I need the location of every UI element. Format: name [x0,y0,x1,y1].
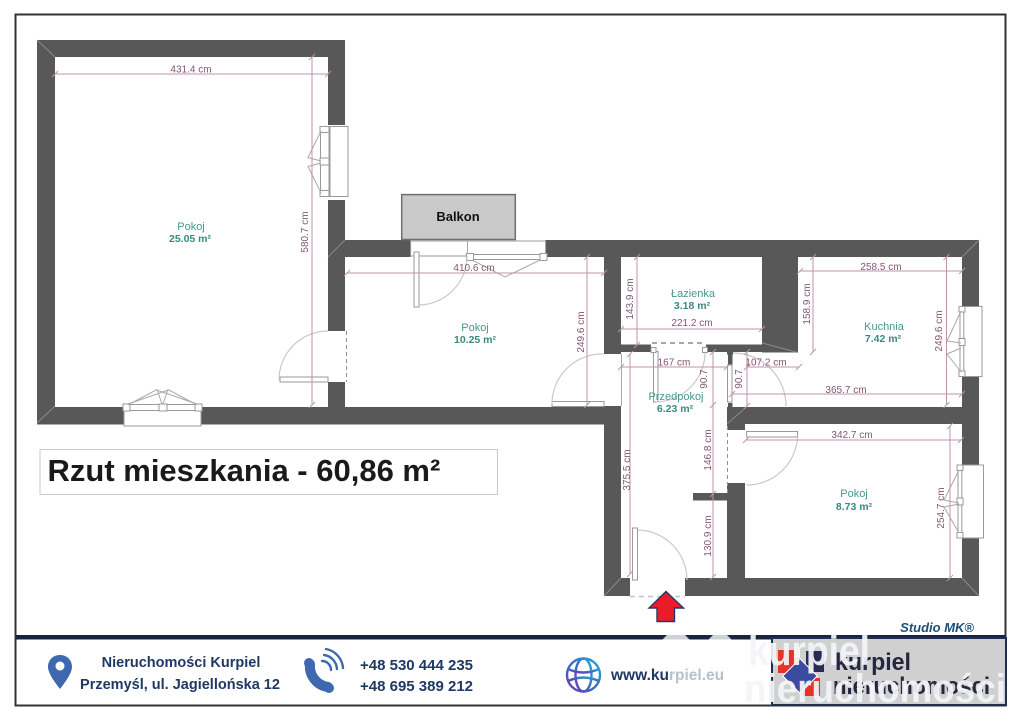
svg-text:580.7 cm: 580.7 cm [300,211,311,252]
svg-text:Balkon: Balkon [436,209,479,224]
svg-text:254.7 cm: 254.7 cm [936,487,947,528]
svg-text:Łazienka: Łazienka [671,288,716,300]
svg-text:143.9 cm: 143.9 cm [625,278,636,319]
svg-text:410.6 cm: 410.6 cm [453,263,494,274]
svg-text:249.6 cm: 249.6 cm [576,311,587,352]
svg-text:7.42 m²: 7.42 m² [865,333,902,345]
svg-text:10.25 m²: 10.25 m² [454,334,497,346]
svg-text:258.5 cm: 258.5 cm [860,262,901,273]
svg-text:342.7 cm: 342.7 cm [831,430,872,441]
svg-text:Studio MK®: Studio MK® [900,620,974,635]
svg-text:www.kurpiel.eu: www.kurpiel.eu [610,667,724,684]
svg-text:249.6 cm: 249.6 cm [934,310,945,351]
svg-text:107.2 cm: 107.2 cm [745,358,786,369]
svg-text:+48 530 444 235: +48 530 444 235 [360,657,473,674]
svg-text:158.9 cm: 158.9 cm [802,283,813,324]
svg-text:90.7: 90.7 [734,369,745,389]
svg-text:167 cm: 167 cm [658,358,691,369]
svg-text:Pokoj: Pokoj [461,322,489,334]
svg-text:Pokoj: Pokoj [840,488,868,500]
svg-text:221.2 cm: 221.2 cm [671,318,712,329]
svg-text:130.9 cm: 130.9 cm [703,515,714,556]
svg-text:3.18 m²: 3.18 m² [674,300,711,312]
svg-text:Przedpokoj: Przedpokoj [648,391,703,403]
svg-text:Kuchnia: Kuchnia [864,321,905,333]
svg-text:8.73 m²: 8.73 m² [836,501,873,513]
svg-text:146.8 cm: 146.8 cm [703,429,714,470]
svg-text:Rzut mieszkania - 60,86 m²: Rzut mieszkania - 60,86 m² [48,453,441,488]
svg-text:Pokoj: Pokoj [177,221,205,233]
svg-text:25.05 m²: 25.05 m² [169,233,212,245]
svg-text:Nieruchomości Kurpiel: Nieruchomości Kurpiel [102,655,261,671]
svg-text:+48 695 389 212: +48 695 389 212 [360,678,473,695]
svg-text:431.4 cm: 431.4 cm [170,65,211,76]
svg-text:nieruchomości: nieruchomości [744,667,1006,711]
svg-text:375.5 cm: 375.5 cm [622,449,633,490]
svg-text:6.23 m²: 6.23 m² [657,403,694,415]
svg-text:Przemyśl, ul. Jagiellońska 12: Przemyśl, ul. Jagiellońska 12 [80,677,280,693]
svg-text:365.7 cm: 365.7 cm [825,385,866,396]
svg-text:90.7: 90.7 [699,369,710,389]
